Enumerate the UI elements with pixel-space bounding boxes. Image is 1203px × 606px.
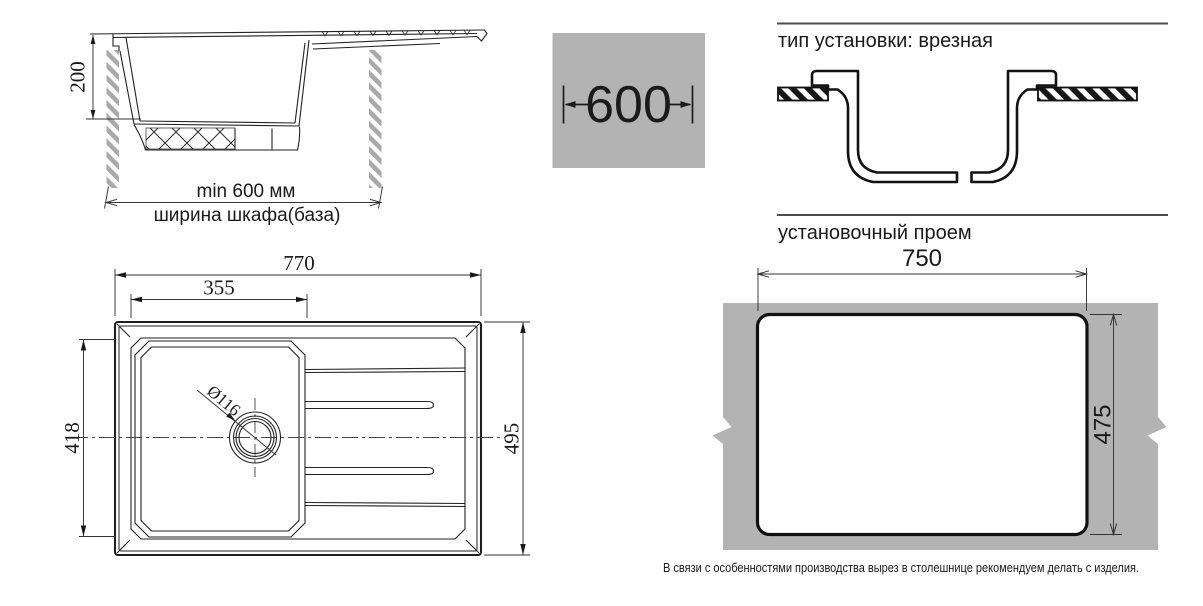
- dim-475-label: 475: [1089, 404, 1116, 444]
- dim-750-label: 750: [902, 245, 942, 272]
- side-view-section: 200 min 600 мм ширина шкафа(база): [65, 30, 487, 227]
- dim-770: 770: [115, 251, 481, 316]
- sink-rim-profile-left: [812, 71, 957, 182]
- sink-technical-drawing: 200 min 600 мм ширина шкафа(база) 600 ти…: [0, 0, 1203, 606]
- opening-section: установочный проем 750 475 В связи с осо…: [663, 215, 1168, 575]
- install-type-title: тип установки: врезная: [778, 30, 993, 52]
- dim-418: 418: [60, 340, 116, 537]
- cabinet-width-label: ширина шкафа(база): [154, 205, 341, 226]
- install-type-section: тип установки: врезная: [777, 24, 1168, 183]
- cutout-opening: [758, 315, 1088, 535]
- drawing-svg: 200 min 600 мм ширина шкафа(база) 600 ти…: [0, 0, 1203, 606]
- countertop-section-right: [1038, 88, 1137, 101]
- dim-418-label: 418: [60, 422, 84, 454]
- dim-cabinet-width: min 600 мм ширина шкафа(база): [105, 181, 383, 226]
- dim-200: 200: [65, 35, 141, 119]
- sink-base-hatch: [146, 128, 235, 149]
- cabinet-width-badge: 600: [553, 33, 706, 168]
- dim-drain-label: Ø116: [203, 382, 244, 420]
- dim-355-label: 355: [203, 276, 235, 300]
- badge-value: 600: [585, 76, 672, 134]
- sink-outer-inner-line: [119, 326, 477, 551]
- countertop-section-left: [778, 88, 828, 101]
- dim-495: 495: [484, 322, 530, 555]
- dim-495-label: 495: [499, 423, 523, 455]
- bowl-inner-line: [141, 347, 299, 531]
- dim-200-label: 200: [65, 61, 89, 93]
- cabinet-wall-right: [369, 50, 382, 188]
- bowl-outer-line: [135, 341, 305, 537]
- dim-355: 355: [131, 276, 307, 319]
- min-width-label: min 600 мм: [197, 181, 296, 202]
- dim-750: 750: [758, 245, 1087, 311]
- top-view-section: Ø116 770 355 418: [60, 251, 530, 555]
- corner-miters: [117, 324, 479, 553]
- opening-title: установочный проем: [778, 222, 972, 244]
- production-note: В связи с особенностями производства выр…: [663, 561, 1139, 575]
- dim-770-label: 770: [283, 251, 315, 275]
